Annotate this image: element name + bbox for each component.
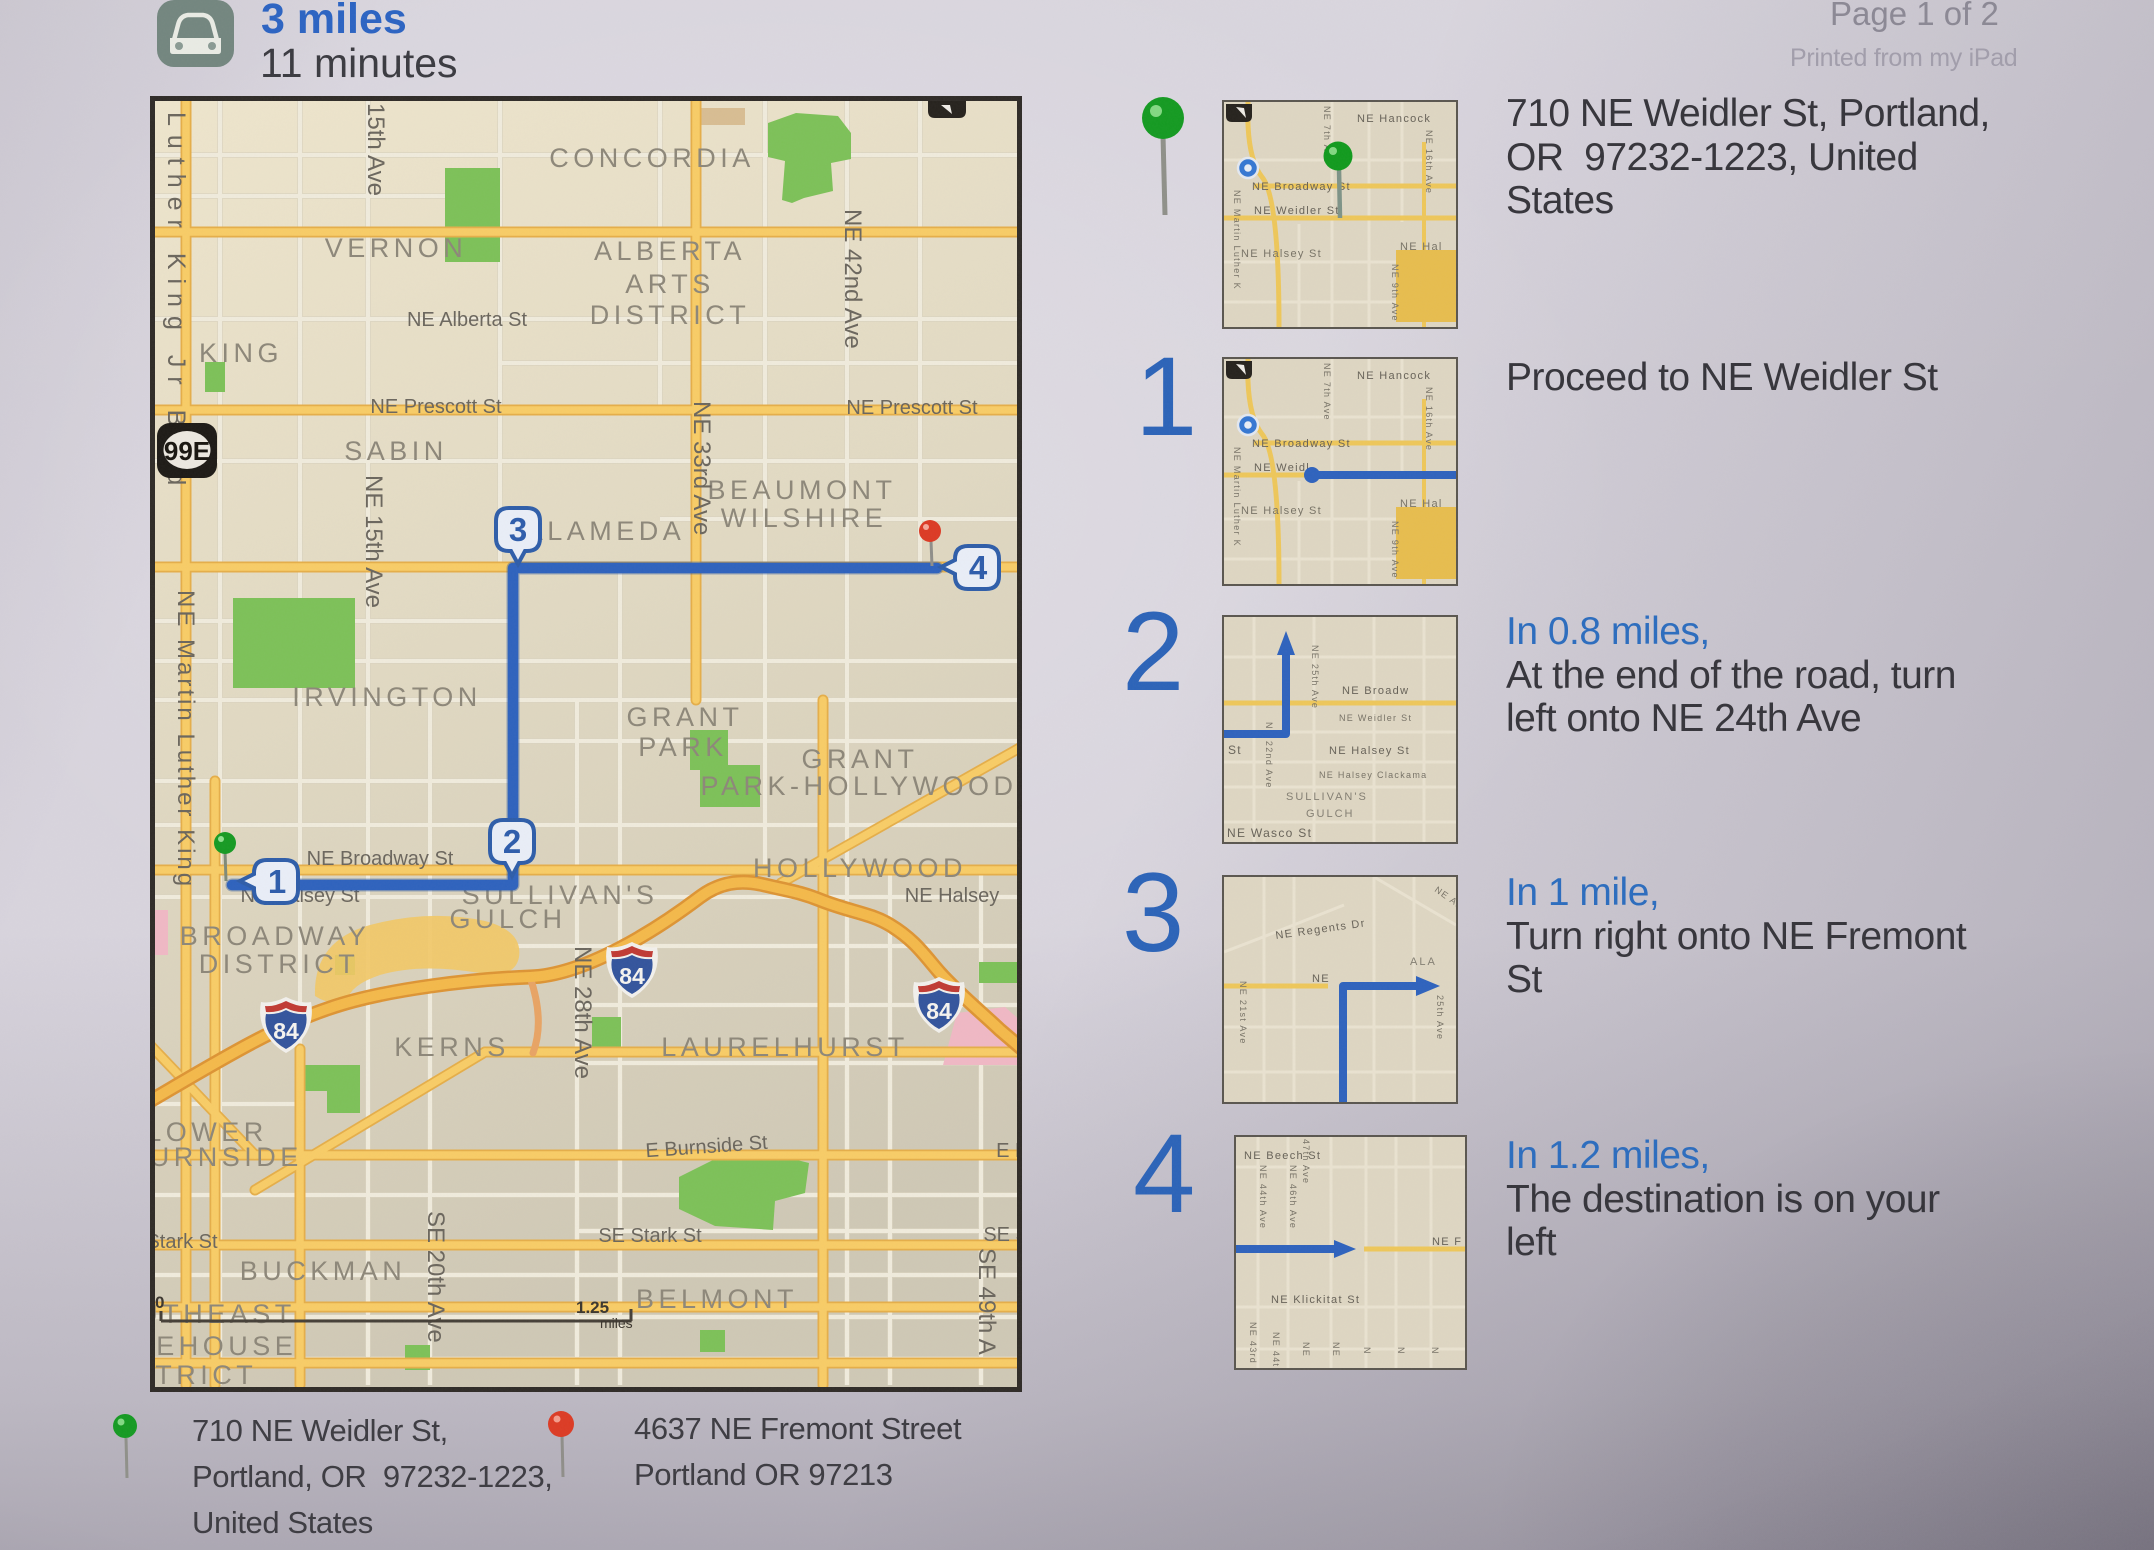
svg-text:BEAUMONT: BEAUMONT [707,475,896,505]
svg-text:NE Halsey St: NE Halsey St [1329,745,1410,757]
svg-text:SE Stark St: SE Stark St [598,1225,702,1247]
svg-text:NE 15th Ave: NE 15th Ave [360,475,387,608]
svg-text:NE 44th Ave: NE 44th Ave [1258,1165,1268,1229]
svg-text:NE 43rd: NE 43rd [1248,1322,1258,1364]
svg-text:CONCORDIA: CONCORDIA [549,143,755,173]
svg-text:NE Hal: NE Hal [1400,498,1443,510]
svg-text:SE 20th Ave: SE 20th Ave [422,1211,449,1343]
svg-text:Stark St: Stark St [155,1231,218,1253]
svg-text:NE Broadway St: NE Broadway St [1252,181,1351,193]
svg-text:GULCH: GULCH [449,904,566,934]
svg-text:NE Alberta St: NE Alberta St [407,309,528,331]
svg-text:ALBERTA: ALBERTA [594,236,746,266]
svg-text:SULLIVAN'S: SULLIVAN'S [1286,791,1368,803]
svg-text:NE 44t: NE 44t [1271,1332,1281,1367]
svg-text:NE: NE [1312,973,1330,985]
svg-text:3: 3 [509,511,527,548]
svg-text:N: N [1396,1347,1406,1355]
svg-text:NE Broadway St: NE Broadway St [307,848,454,870]
svg-text:NE Hancock: NE Hancock [1357,113,1431,125]
svg-text:KING: KING [199,338,283,368]
svg-text:HOLLYWOOD: HOLLYWOOD [753,853,967,883]
svg-text:BELMONT: BELMONT [636,1284,798,1314]
svg-text:NE 46th Ave: NE 46th Ave [1288,1165,1298,1229]
svg-text:BUCKMAN: BUCKMAN [240,1256,407,1286]
svg-text:NE Halsey St: NE Halsey St [1241,505,1322,517]
svg-text:ARTS: ARTS [625,269,715,299]
svg-text:NE Halsey Clackama: NE Halsey Clackama [1319,770,1427,780]
svg-text:25th Ave: 25th Ave [1435,995,1445,1040]
svg-text:WILSHIRE: WILSHIRE [721,503,888,533]
svg-text:ALA: ALA [1410,956,1437,968]
svg-text:N: N [1430,1347,1440,1355]
svg-text:15th Ave: 15th Ave [362,103,389,196]
svg-text:IRVINGTON: IRVINGTON [292,682,482,712]
svg-text:NE Prescott St: NE Prescott St [370,396,502,418]
svg-text:NE Weidler St: NE Weidler St [1254,205,1340,217]
svg-text:PARK-HOLLYWOOD: PARK-HOLLYWOOD [700,771,1017,801]
svg-text:NE Broadw: NE Broadw [1342,685,1409,697]
svg-text:VERNON: VERNON [325,233,468,263]
svg-text:47th Ave: 47th Ave [1301,1139,1311,1184]
svg-text:NE: NE [1301,1342,1311,1357]
svg-text:DISTRICT: DISTRICT [590,300,751,330]
svg-text:NE Weidl: NE Weidl [1254,462,1310,474]
svg-text:DISTRICT: DISTRICT [199,949,360,979]
svg-text:BURNSIDE: BURNSIDE [155,1142,303,1172]
svg-text:84: 84 [273,1018,299,1044]
svg-text:NE 16th Ave: NE 16th Ave [1424,130,1434,194]
svg-text:4: 4 [969,549,988,586]
svg-text:99E: 99E [164,436,210,466]
svg-text:0: 0 [155,1293,164,1312]
svg-text:St: St [1228,743,1242,757]
svg-text:WAREHOUSE: WAREHOUSE [155,1331,297,1361]
svg-text:N: N [1362,1347,1372,1355]
svg-text:GULCH: GULCH [1306,808,1355,820]
svg-text:NE 16th Ave: NE 16th Ave [1424,387,1434,451]
svg-text:2: 2 [503,823,521,860]
svg-text:NE 9th Ave: NE 9th Ave [1390,521,1400,579]
svg-text:1: 1 [268,863,286,900]
svg-text:SOUTHEAST: SOUTHEAST [155,1299,296,1329]
svg-text:NE Prescott St: NE Prescott St [846,397,978,419]
svg-text:NE Martin Luther K: NE Martin Luther K [1232,447,1242,547]
svg-text:NE F: NE F [1432,1236,1462,1248]
svg-text:NE 28th Ave: NE 28th Ave [569,946,596,1079]
svg-text:NE Wasco St: NE Wasco St [1227,826,1312,840]
svg-text:KERNS: KERNS [394,1032,510,1062]
svg-text:NE Halsey: NE Halsey [905,885,999,907]
svg-text:NE Broadway St: NE Broadway St [1252,438,1351,450]
svg-text:NE 25th Ave: NE 25th Ave [1310,645,1320,709]
svg-text:NE 21st Ave: NE 21st Ave [1238,981,1248,1045]
svg-text:BROADWAY: BROADWAY [180,921,371,951]
svg-text:miles: miles [600,1315,633,1331]
svg-text:ALAMEDA: ALAMEDA [525,516,686,546]
svg-text:SE Stark St: SE Stark St [983,1224,1017,1246]
svg-text:NE 42nd Ave: NE 42nd Ave [839,209,866,349]
svg-text:NE Hancock: NE Hancock [1357,370,1431,382]
svg-text:SE 49th A: SE 49th A [973,1248,1000,1355]
svg-text:NE 9th Ave: NE 9th Ave [1390,264,1400,322]
svg-text:NE Klickitat St: NE Klickitat St [1271,1294,1360,1306]
svg-text:GRANT: GRANT [627,702,744,732]
svg-text:E Burnside: E Burnside [996,1140,1017,1162]
svg-text:GRANT: GRANT [802,744,919,774]
svg-text:LAURELHURST: LAURELHURST [661,1032,909,1062]
svg-text:NE 7th Ave: NE 7th Ave [1322,363,1332,421]
svg-text:NE Weidler St: NE Weidler St [1339,713,1412,723]
svg-text:NE: NE [1331,1342,1341,1357]
svg-text:NE Hal: NE Hal [1400,241,1443,253]
svg-text:NE 33rd Ave: NE 33rd Ave [688,401,715,535]
svg-text:DISTRICT: DISTRICT [155,1360,257,1387]
svg-text:NE Martin Luther King: NE Martin Luther King [172,590,199,889]
svg-text:NE Halsey St: NE Halsey St [1241,248,1322,260]
svg-text:SABIN: SABIN [344,436,448,466]
svg-text:PARK: PARK [638,732,728,762]
svg-text:NE Martin Luther K: NE Martin Luther K [1232,190,1242,290]
